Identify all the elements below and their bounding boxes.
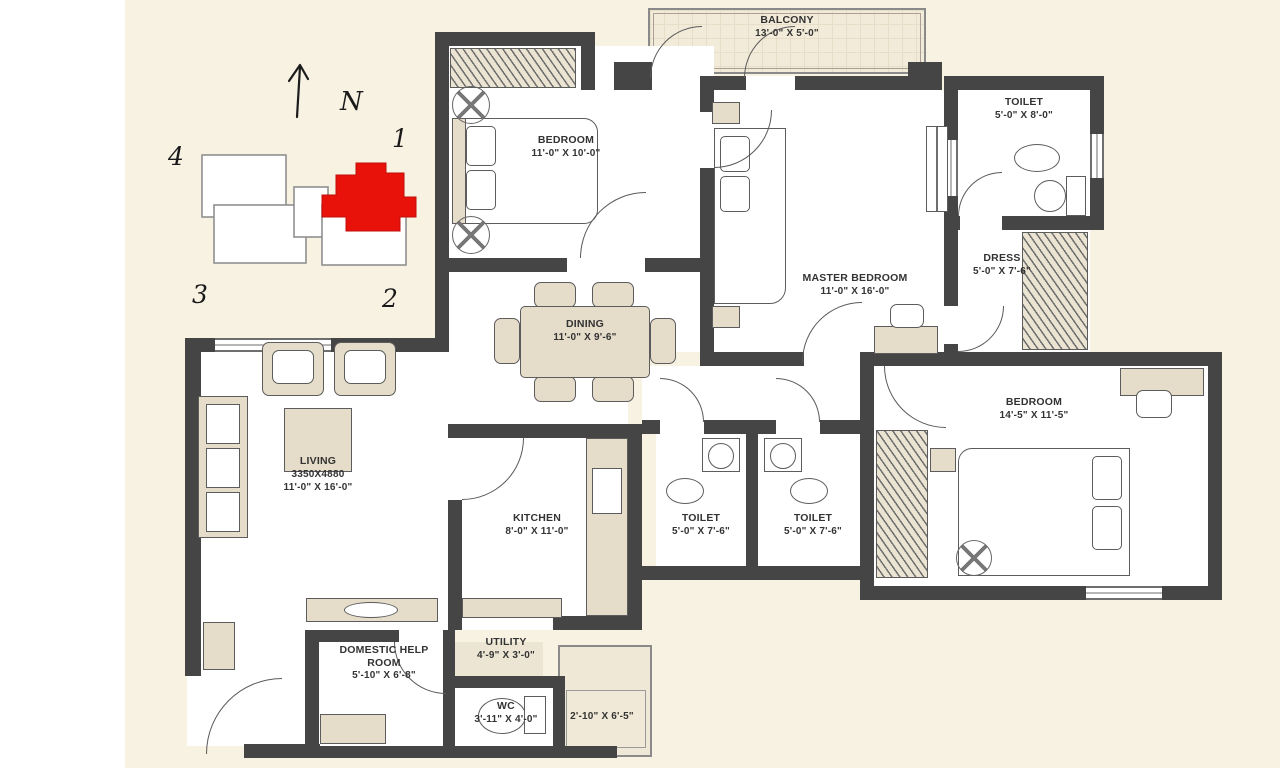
room-dims: 8'-0" X 11'-0" xyxy=(505,526,568,537)
side-table xyxy=(930,448,956,472)
room-name: BEDROOM xyxy=(538,134,594,146)
room-name: DINING xyxy=(566,318,604,330)
label-bedroom2: BEDROOM 14'-5" X 11'-5" xyxy=(1000,396,1069,422)
room-name: DOMESTIC HELP ROOM xyxy=(340,644,429,669)
label-balcony: BALCONY 13'-0" X 5'-0" xyxy=(755,14,819,40)
keyplan-corner-2: 2 xyxy=(381,284,398,313)
key-plan: N 4 1 3 2 xyxy=(160,55,430,315)
room-name: DRESS xyxy=(983,252,1020,264)
north-label: N xyxy=(339,87,364,117)
pillow xyxy=(720,176,750,212)
wall xyxy=(614,62,652,90)
dining-chair xyxy=(592,282,634,308)
wall xyxy=(642,566,860,580)
wall xyxy=(435,32,449,272)
door-opening xyxy=(648,76,700,90)
keyplan-corner-4: 4 xyxy=(167,142,184,171)
wall xyxy=(553,616,642,630)
door-opening xyxy=(448,438,462,500)
label-utility: UTILITY 4'-9" X 3'-0" xyxy=(477,636,535,662)
ceiling-fan-icon xyxy=(452,86,490,124)
room-metric: 3350X4880 xyxy=(292,469,345,480)
wall xyxy=(700,352,804,366)
dining-chair xyxy=(494,318,520,364)
room-name: LIVING xyxy=(300,455,336,467)
keyplan-corner-1: 1 xyxy=(392,124,408,153)
room-dims: 5'-0" X 8'-0" xyxy=(995,110,1053,121)
ceiling-fan-icon xyxy=(452,216,490,254)
wall xyxy=(948,352,1222,366)
door-opening xyxy=(944,306,958,344)
room-dims: 5'-0" X 7'-6" xyxy=(784,526,842,537)
room-dims: 13'-0" X 5'-0" xyxy=(755,28,819,39)
room-dims: 4'-9" X 3'-0" xyxy=(477,650,535,661)
kitchen-platform xyxy=(586,438,628,616)
toilet-fixture xyxy=(1034,180,1066,212)
label-wc: WC 3'-11" X 4'-0" xyxy=(474,700,537,726)
room-dims: 11'-0" X 10'-0" xyxy=(532,148,601,159)
wall xyxy=(435,258,567,272)
wall xyxy=(746,434,758,580)
wall xyxy=(1002,216,1104,230)
label-toilet-a: TOILET 5'-0" X 7'-6" xyxy=(672,512,730,538)
dining-chair xyxy=(534,376,576,402)
wall xyxy=(908,62,942,90)
room-name: TOILET xyxy=(794,512,832,524)
room-dims: 11'-0" X 16'-0" xyxy=(284,482,353,493)
label-dress: DRESS 5'-0" X 7'-6" xyxy=(973,252,1031,278)
bed-headboard xyxy=(452,118,466,224)
room-name: MASTER BEDROOM xyxy=(803,272,908,284)
toilet-fixture xyxy=(790,478,828,504)
door-opening xyxy=(660,420,704,434)
door-opening xyxy=(744,76,795,90)
armchair-seat xyxy=(344,350,386,384)
wall xyxy=(1208,352,1222,600)
armchair-seat xyxy=(272,350,314,384)
wall xyxy=(448,424,462,438)
wall xyxy=(860,586,1086,600)
dining-chair xyxy=(592,376,634,402)
cistern xyxy=(1066,176,1086,216)
wall xyxy=(628,424,642,630)
room-dims: 2'-10" X 6'-5" xyxy=(570,711,634,722)
keyplan-wing xyxy=(214,205,306,263)
room-name: TOILET xyxy=(1005,96,1043,108)
label-side-yard: 2'-10" X 6'-5" xyxy=(570,710,634,724)
wall xyxy=(305,630,319,758)
wall xyxy=(645,258,714,272)
wall xyxy=(448,424,642,438)
room-dims: 14'-5" X 11'-5" xyxy=(1000,410,1069,421)
wash-basin xyxy=(708,443,734,469)
wall xyxy=(860,366,874,600)
wall xyxy=(443,676,565,688)
wall xyxy=(1162,586,1222,600)
label-toilet-b: TOILET 5'-0" X 7'-6" xyxy=(784,512,842,538)
wall xyxy=(553,746,617,758)
wall xyxy=(704,420,776,434)
room-name: BEDROOM xyxy=(1006,396,1062,408)
room-dims: 3'-11" X 4'-0" xyxy=(474,714,537,725)
pillow xyxy=(1092,456,1122,500)
wardrobe xyxy=(450,48,576,88)
chair xyxy=(890,304,924,328)
door-opening xyxy=(776,420,820,434)
side-table xyxy=(712,306,740,328)
wall xyxy=(581,32,595,90)
door-opening xyxy=(567,258,645,272)
chair xyxy=(1136,390,1172,418)
room-dims: 5'-10" X 6'-8" xyxy=(352,670,416,681)
sofa-cushion xyxy=(206,404,240,444)
room-name: WC xyxy=(497,700,515,712)
sofa-cushion xyxy=(206,492,240,532)
north-arrow-icon xyxy=(289,65,308,117)
room-name: KITCHEN xyxy=(513,512,561,524)
pillow xyxy=(466,170,496,210)
ceiling-fan-icon xyxy=(956,540,992,576)
wall xyxy=(795,76,913,90)
keyplan-corner-3: 3 xyxy=(192,280,208,309)
label-living: LIVING 3350X4880 11'-0" X 16'-0" xyxy=(284,455,353,495)
shoe-cabinet xyxy=(203,622,235,670)
pillow xyxy=(466,126,496,166)
wall xyxy=(305,630,399,642)
wardrobe xyxy=(876,430,928,578)
wall xyxy=(1090,90,1104,134)
desk xyxy=(874,326,938,354)
room-name: UTILITY xyxy=(485,636,526,648)
wall xyxy=(642,420,660,434)
floor-plan-page: N 4 1 3 2 xyxy=(0,0,1280,768)
wall xyxy=(860,352,884,366)
wardrobe xyxy=(1022,232,1088,350)
room-dims: 11'-0" X 16'-0" xyxy=(821,286,890,297)
wall xyxy=(448,500,462,630)
platter xyxy=(344,602,398,618)
label-kitchen: KITCHEN 8'-0" X 11'-0" xyxy=(505,512,568,538)
kitchen-platform xyxy=(462,598,562,618)
sofa-cushion xyxy=(206,448,240,488)
wall xyxy=(944,230,958,306)
label-domestic-help: DOMESTIC HELP ROOM 5'-10" X 6'-8" xyxy=(326,644,442,683)
room-name: TOILET xyxy=(682,512,720,524)
window xyxy=(1090,134,1104,178)
wardrobe xyxy=(926,126,948,212)
toilet-fixture xyxy=(666,478,704,504)
wall xyxy=(435,32,595,46)
door-opening xyxy=(399,630,443,642)
label-toilet-top: TOILET 5'-0" X 8'-0" xyxy=(995,96,1053,122)
kitchen-sink xyxy=(592,468,622,514)
room-dims: 5'-0" X 7'-6" xyxy=(973,266,1031,277)
room-dims: 5'-0" X 7'-6" xyxy=(672,526,730,537)
dining-chair xyxy=(534,282,576,308)
wall xyxy=(305,746,567,758)
wash-basin xyxy=(1014,144,1060,172)
door-opening xyxy=(960,216,1002,230)
door-opening xyxy=(462,616,553,630)
bed xyxy=(320,714,386,744)
wall xyxy=(944,216,960,230)
label-master-bedroom: MASTER BEDROOM 11'-0" X 16'-0" xyxy=(803,272,908,298)
wall xyxy=(820,420,860,434)
pillow xyxy=(1092,506,1122,550)
wall xyxy=(944,76,1104,90)
wash-basin xyxy=(770,443,796,469)
label-bedroom1: BEDROOM 11'-0" X 10'-0" xyxy=(532,134,601,160)
window xyxy=(1086,586,1162,600)
dining-chair xyxy=(650,318,676,364)
room-name: BALCONY xyxy=(760,14,813,26)
room-dims: 11'-0" X 9'-6" xyxy=(553,332,616,343)
label-dining: DINING 11'-0" X 9'-6" xyxy=(553,318,616,344)
